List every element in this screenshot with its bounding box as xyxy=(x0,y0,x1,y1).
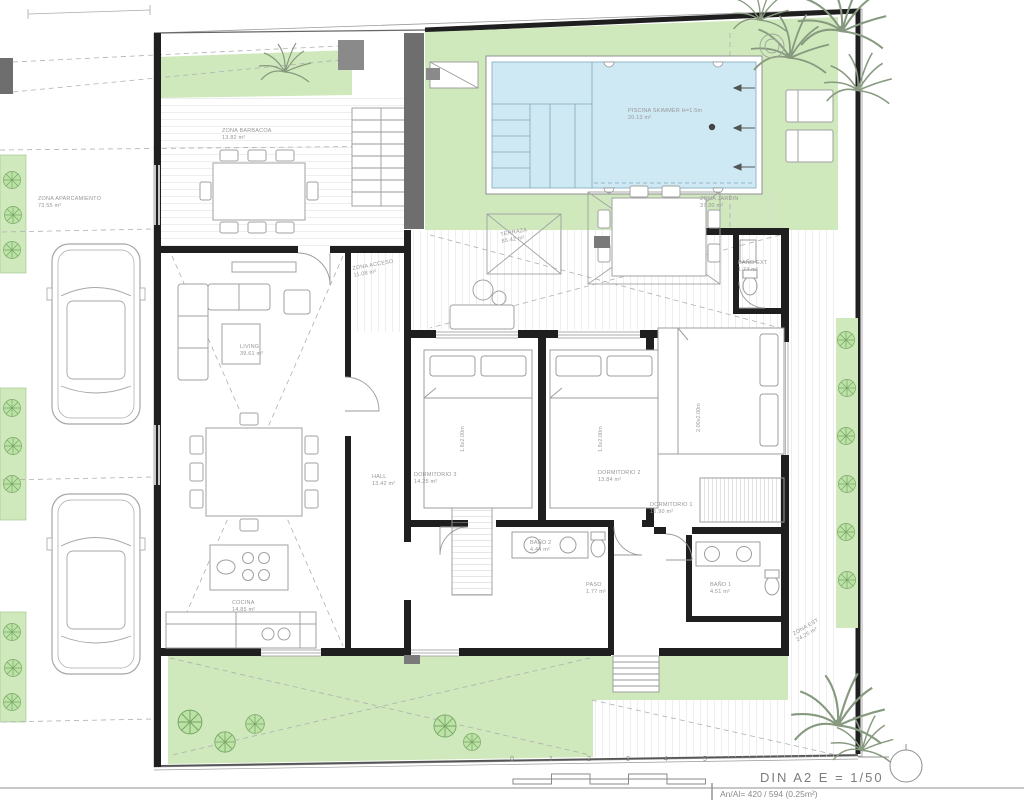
scale-tick-2: 2 xyxy=(587,756,591,763)
label-piscina: PISCINA SKIMMER H=1.5m 20.13 m² xyxy=(628,108,702,122)
label-bed3-size: 1.8x2.00m xyxy=(460,426,466,452)
label-dormitorio-2: DORMITORIO 2 13.84 m² xyxy=(598,470,641,484)
room-area: 1.77 m² xyxy=(586,589,606,596)
wardrobe xyxy=(700,478,784,522)
room-area: 73.55 m² xyxy=(38,203,101,210)
label-zona-aparcamiento: ZONA APARCAMIENTO 73.55 m² xyxy=(38,196,101,210)
label-bano-1: BAÑO 1 4.51 m² xyxy=(710,582,731,596)
room-name: BAÑO 2 xyxy=(530,540,551,547)
sheet-paper-info: An/Al= 420 / 594 (0.25m²) xyxy=(720,789,818,799)
room-name: PASO xyxy=(586,582,606,589)
room-name: COCINA xyxy=(232,600,255,607)
label-bano-2: BAÑO 2 4.44 m² xyxy=(530,540,551,554)
room-name: LIVING xyxy=(240,344,263,351)
scale-tick-5: 5 xyxy=(703,756,707,763)
room-area: 39.61 m² xyxy=(240,351,263,358)
room-area: 37.30 m² xyxy=(700,203,739,210)
scale-bar xyxy=(513,774,706,784)
car-icon xyxy=(47,494,145,674)
label-paso: PASO 1.77 m² xyxy=(586,582,606,596)
room-name: BAÑO 1 xyxy=(710,582,731,589)
label-dormitorio-3: DORMITORIO 3 14.25 m² xyxy=(414,472,457,486)
kitchen-counter xyxy=(166,612,316,648)
room-name: ZONA BARBACOA xyxy=(222,128,272,135)
label-zona-jardin: ZONA JARDIN 37.30 m² xyxy=(700,196,739,210)
kitchen-island xyxy=(210,545,288,590)
label-bed1-size: 2.00x2.00m xyxy=(696,403,702,432)
room-name: ZONA JARDIN xyxy=(700,196,739,203)
label-hall: HALL 13.42 m² xyxy=(372,474,395,488)
label-bed2-size: 1.8x2.00m xyxy=(598,426,604,452)
label-living: LIVING 39.61 m² xyxy=(240,344,263,358)
sheet-format-scale: DIN A2 E = 1/50 xyxy=(760,770,884,785)
room-name: DORMITORIO 2 xyxy=(598,470,641,477)
room-name: BAÑO EXT xyxy=(738,260,767,267)
stairs-exterior xyxy=(613,656,659,692)
room-area: 13.84 m² xyxy=(598,477,641,484)
plan-linework xyxy=(0,0,1024,800)
room-area: 20.13 m² xyxy=(628,115,702,122)
parking-zone xyxy=(47,244,145,674)
room-name: ZONA APARCAMIENTO xyxy=(38,196,101,203)
room-area: 13.42 m² xyxy=(372,481,395,488)
title-block-lines xyxy=(0,783,1024,800)
label-bano-ext: BAÑO EXT 1.74 m² xyxy=(738,260,767,274)
scale-tick-0: 0 xyxy=(510,756,514,763)
stairs-top xyxy=(352,108,410,206)
bed-dorm2 xyxy=(550,350,658,508)
label-dormitorio-1: DORMITORIO 1 15.90 m² xyxy=(650,502,693,516)
room-area: 15.90 m² xyxy=(650,509,693,516)
scale-tick-4: 4 xyxy=(664,756,668,763)
room-name: DORMITORIO 1 xyxy=(650,502,693,509)
room-area: 14.25 m² xyxy=(414,479,457,486)
scale-tick-1: 1 xyxy=(549,756,553,763)
car-icon xyxy=(47,244,145,424)
room-area: 4.44 m² xyxy=(530,547,551,554)
bed-dorm1 xyxy=(658,328,784,454)
room-name: DORMITORIO 3 xyxy=(414,472,457,479)
scale-tick-3: 3 xyxy=(626,756,630,763)
label-cocina: COCINA 14.85 m² xyxy=(232,600,255,614)
floor-plan: ZONA APARCAMIENTO 73.55 m² ZONA BARBACOA… xyxy=(0,0,1024,800)
room-name: PISCINA SKIMMER H=1.5m xyxy=(628,108,702,115)
room-name: HALL xyxy=(372,474,395,481)
room-area: 1.74 m² xyxy=(738,267,767,274)
room-area: 14.85 m² xyxy=(232,607,255,614)
stairs-interior xyxy=(452,500,492,595)
room-area: 13.82 m² xyxy=(222,135,272,142)
room-area: 4.51 m² xyxy=(710,589,731,596)
pool xyxy=(486,56,762,194)
label-zona-barbacoa: ZONA BARBACOA 13.82 m² xyxy=(222,128,272,142)
